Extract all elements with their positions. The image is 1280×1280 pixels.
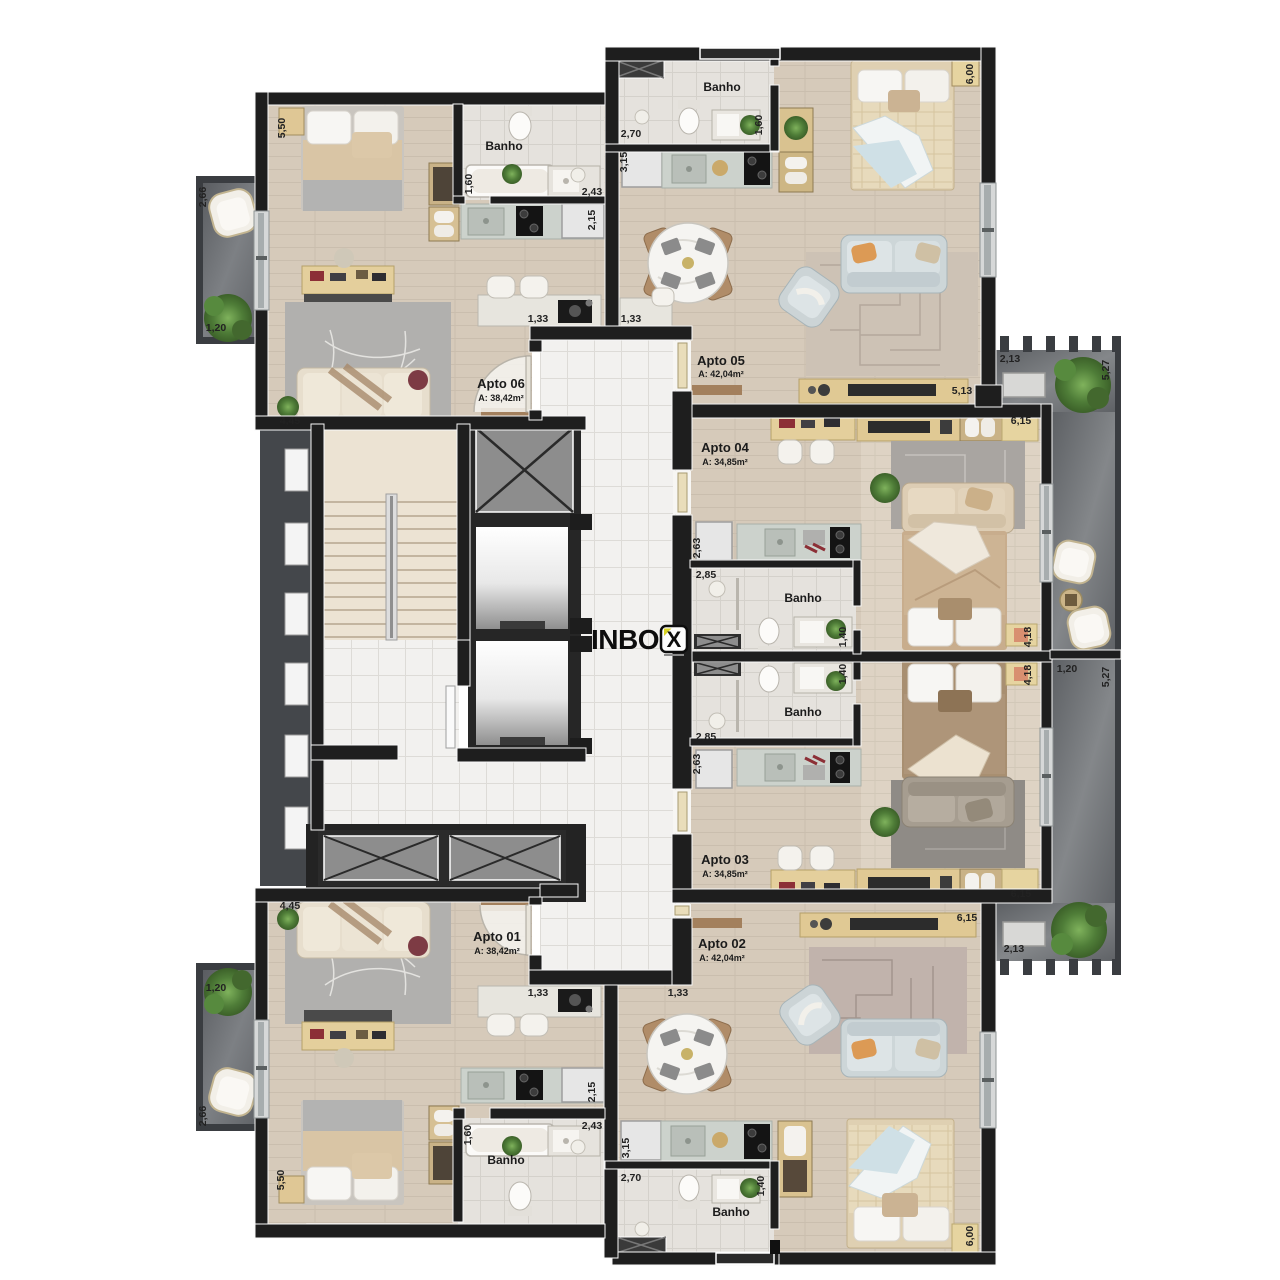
svg-text:2,85: 2,85 bbox=[696, 569, 717, 581]
svg-text:1,20: 1,20 bbox=[206, 322, 227, 334]
svg-text:2,13: 2,13 bbox=[1004, 943, 1025, 955]
svg-text:4,18: 4,18 bbox=[1022, 665, 1034, 686]
svg-text:2,85: 2,85 bbox=[696, 731, 717, 743]
svg-text:6,00: 6,00 bbox=[964, 1226, 976, 1247]
svg-text:6,15: 6,15 bbox=[957, 912, 978, 924]
svg-text:2,15: 2,15 bbox=[586, 1082, 598, 1103]
svg-text:5,50: 5,50 bbox=[275, 1170, 287, 1191]
svg-text:Apto 05: Apto 05 bbox=[697, 353, 745, 368]
svg-text:A: 38,42m²: A: 38,42m² bbox=[474, 946, 520, 956]
svg-text:4,45: 4,45 bbox=[280, 415, 301, 427]
svg-text:6,15: 6,15 bbox=[1011, 888, 1032, 900]
svg-text:5,50: 5,50 bbox=[276, 118, 288, 139]
svg-text:Banho: Banho bbox=[485, 139, 522, 153]
svg-text:A: 38,42m²: A: 38,42m² bbox=[478, 393, 524, 403]
svg-text:1,33: 1,33 bbox=[668, 987, 689, 999]
svg-text:6,00: 6,00 bbox=[964, 64, 976, 85]
svg-text:5,13: 5,13 bbox=[952, 385, 973, 397]
svg-text:Banho: Banho bbox=[712, 1205, 749, 1219]
svg-text:2,43: 2,43 bbox=[582, 186, 603, 198]
svg-text:INBO: INBO bbox=[591, 624, 659, 655]
svg-text:Apto 04: Apto 04 bbox=[701, 440, 749, 455]
svg-text:4,45: 4,45 bbox=[280, 900, 301, 912]
svg-text:4,18: 4,18 bbox=[1022, 627, 1034, 648]
svg-text:1,33: 1,33 bbox=[528, 313, 549, 325]
svg-text:2,63: 2,63 bbox=[691, 538, 703, 559]
svg-text:Banho: Banho bbox=[784, 591, 821, 605]
svg-text:2,70: 2,70 bbox=[621, 128, 642, 140]
svg-text:2,70: 2,70 bbox=[621, 1172, 642, 1184]
svg-text:1,33: 1,33 bbox=[528, 987, 549, 999]
svg-text:5,27: 5,27 bbox=[1100, 667, 1112, 688]
svg-text:2,13: 2,13 bbox=[1000, 353, 1021, 365]
svg-text:A: 34,85m²: A: 34,85m² bbox=[702, 869, 748, 879]
svg-text:1,20: 1,20 bbox=[1057, 663, 1078, 675]
svg-text:1,40: 1,40 bbox=[755, 1176, 767, 1197]
svg-text:2,63: 2,63 bbox=[691, 754, 703, 775]
svg-text:2,66: 2,66 bbox=[197, 187, 209, 208]
svg-text:A: 42,04m²: A: 42,04m² bbox=[698, 369, 744, 379]
svg-text:6,15: 6,15 bbox=[1011, 415, 1032, 427]
svg-text:A: 42,04m²: A: 42,04m² bbox=[699, 953, 745, 963]
svg-text:A: 34,85m²: A: 34,85m² bbox=[702, 457, 748, 467]
svg-text:Apto 06: Apto 06 bbox=[477, 376, 525, 391]
svg-text:3,15: 3,15 bbox=[618, 152, 630, 173]
svg-text:3,15: 3,15 bbox=[620, 1138, 632, 1159]
svg-text:Banho: Banho bbox=[784, 705, 821, 719]
svg-text:1,33: 1,33 bbox=[621, 313, 642, 325]
svg-text:1,60: 1,60 bbox=[753, 115, 765, 136]
svg-text:5,27: 5,27 bbox=[1100, 360, 1112, 381]
svg-text:Apto 01: Apto 01 bbox=[473, 929, 521, 944]
svg-text:1,40: 1,40 bbox=[837, 664, 849, 685]
svg-text:Apto 02: Apto 02 bbox=[698, 936, 746, 951]
svg-text:Apto 03: Apto 03 bbox=[701, 852, 749, 867]
svg-text:1,60: 1,60 bbox=[462, 1125, 474, 1146]
svg-text:2,66: 2,66 bbox=[197, 1106, 209, 1127]
svg-text:Banho: Banho bbox=[487, 1153, 524, 1167]
svg-text:1,60: 1,60 bbox=[463, 174, 475, 195]
svg-text:X: X bbox=[667, 627, 682, 652]
svg-text:Banho: Banho bbox=[703, 80, 740, 94]
svg-text:1,40: 1,40 bbox=[837, 627, 849, 648]
svg-text:2,43: 2,43 bbox=[582, 1120, 603, 1132]
svg-text:1,20: 1,20 bbox=[206, 982, 227, 994]
svg-text:2,15: 2,15 bbox=[586, 210, 598, 231]
